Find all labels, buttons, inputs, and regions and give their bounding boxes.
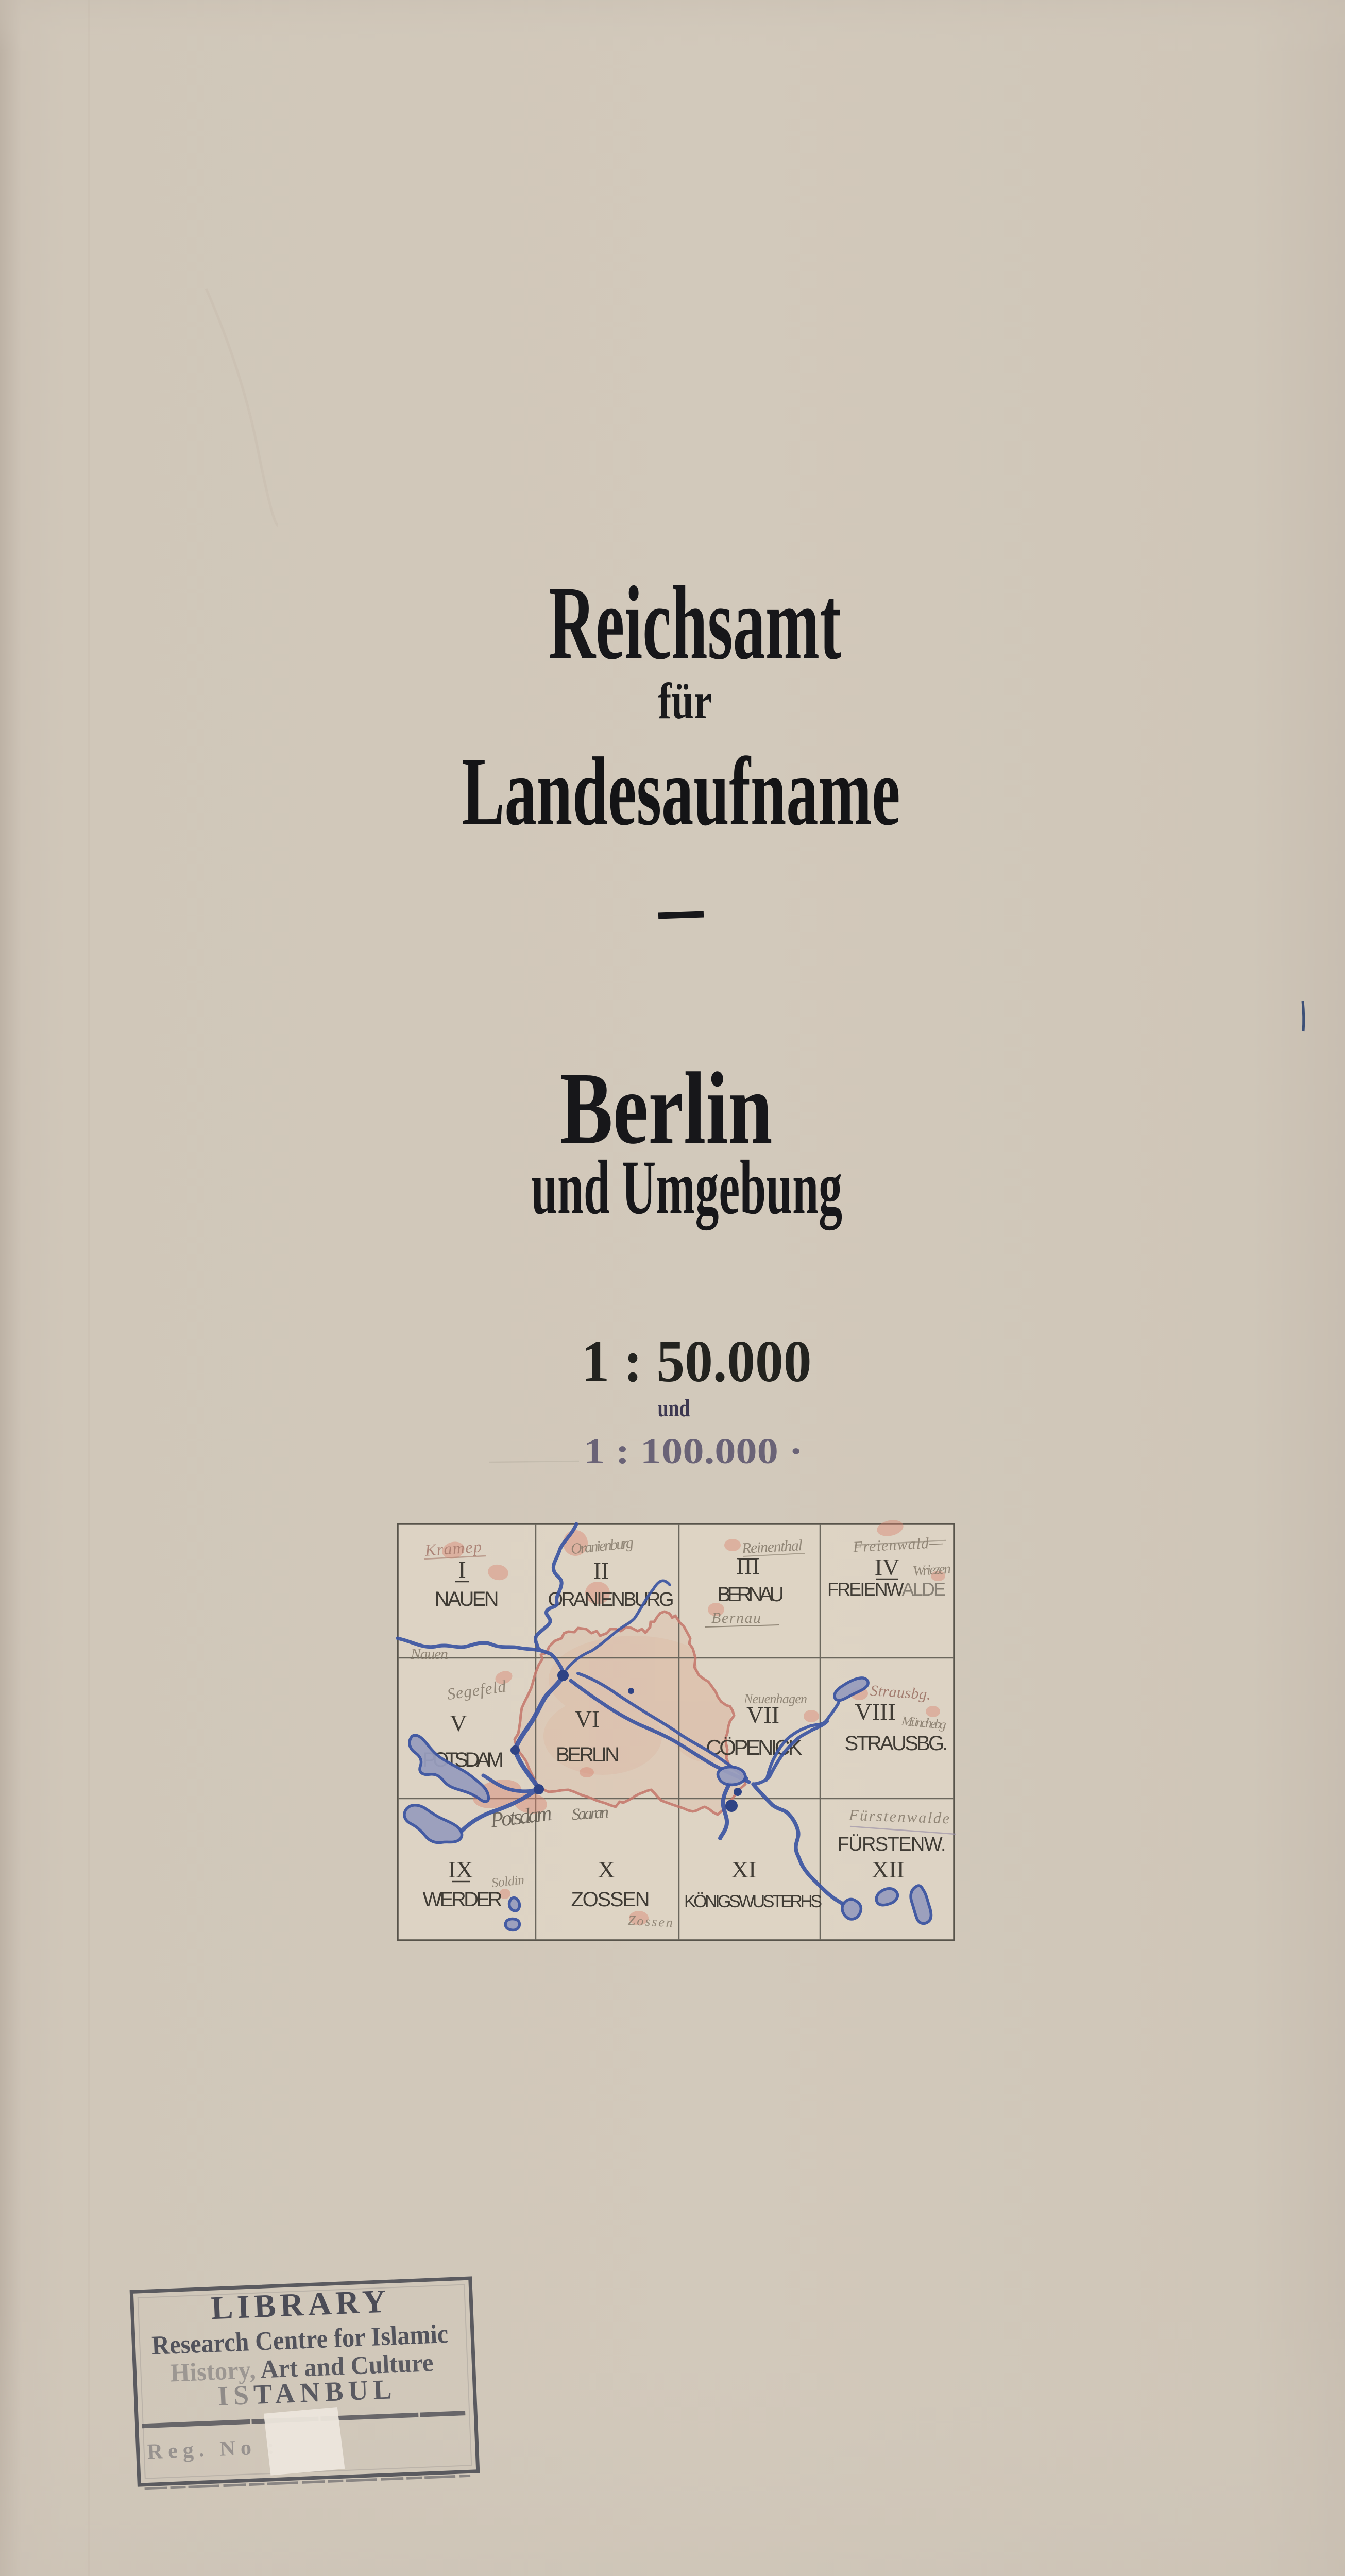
svg-text:und: und [658, 1395, 690, 1422]
svg-text:Reichsamt: Reichsamt [549, 565, 841, 682]
svg-text:Wriezen: Wriezen [912, 1561, 951, 1580]
svg-text:VI: VI [575, 1706, 600, 1732]
svg-text:XI: XI [731, 1856, 757, 1883]
svg-text:Fürstenwalde: Fürstenwalde [848, 1807, 950, 1827]
svg-text:Saaran: Saaran [571, 1802, 609, 1823]
svg-text:NAUEN: NAUEN [435, 1588, 499, 1611]
svg-text:VIII: VIII [855, 1699, 895, 1725]
svg-text:II: II [593, 1557, 609, 1584]
svg-text:1 : 50.000: 1 : 50.000 [582, 1329, 812, 1394]
svg-text:1 : 100.000 ·: 1 : 100.000 · [584, 1432, 803, 1471]
svg-text:ORANIENBURG: ORANIENBURG [548, 1589, 674, 1611]
svg-text:ZOSSEN: ZOSSEN [571, 1888, 650, 1911]
svg-text:für: für [658, 672, 712, 730]
svg-text:KÖNIGSWUSTERHS: KÖNIGSWUSTERHS [684, 1892, 822, 1911]
svg-text:Bernau: Bernau [711, 1609, 761, 1626]
svg-text:IV: IV [875, 1554, 900, 1580]
svg-text:V: V [450, 1710, 467, 1736]
svg-text:X: X [598, 1856, 615, 1883]
svg-text:BERLIN: BERLIN [556, 1743, 620, 1766]
svg-text:III: III [736, 1553, 760, 1579]
svg-text:und Umgebung: und Umgebung [531, 1145, 842, 1230]
svg-text:WERDER: WERDER [423, 1888, 503, 1911]
svg-text:FÜRSTENW.: FÜRSTENW. [838, 1834, 946, 1855]
svg-text:VII: VII [746, 1702, 779, 1728]
svg-text:XII: XII [872, 1856, 905, 1883]
svg-text:BERNAU: BERNAU [717, 1583, 784, 1606]
svg-text:IX: IX [448, 1856, 473, 1883]
svg-text:FREIENWALDE: FREIENWALDE [827, 1579, 946, 1600]
svg-text:I: I [458, 1556, 466, 1583]
svg-text:STRAUSBG.: STRAUSBG. [845, 1732, 948, 1755]
svg-text:Landesaufname: Landesaufname [462, 738, 900, 846]
